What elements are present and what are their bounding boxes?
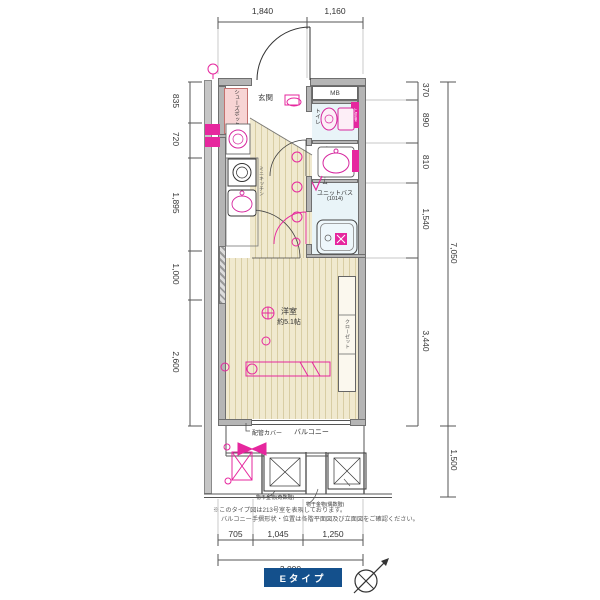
extension-lines bbox=[218, 29, 406, 534]
toilet-door-arc bbox=[270, 140, 306, 176]
bath-check-mark bbox=[312, 176, 322, 190]
washer-tag-1 bbox=[205, 124, 220, 135]
entrance-door-arc bbox=[257, 27, 310, 80]
entrance-step-line bbox=[250, 118, 312, 155]
kitchen-stove bbox=[228, 159, 256, 186]
bathtub bbox=[317, 220, 357, 254]
washer-tag-2 bbox=[205, 137, 220, 147]
evacuation-hatch-odd bbox=[264, 453, 306, 491]
wash-basin bbox=[318, 147, 354, 177]
pipe-cover-leader bbox=[246, 423, 250, 431]
ground-lines bbox=[204, 494, 392, 498]
toilet-fixture bbox=[321, 108, 354, 130]
compass-icon bbox=[354, 558, 389, 593]
basin-side-tag bbox=[352, 150, 359, 172]
room-window bbox=[252, 421, 350, 425]
washing-machine bbox=[226, 124, 250, 154]
floor-plan-page: MB シューズボックス クローゼット 玄関 トイレ パウダールーム 上部棚 ユニ… bbox=[0, 0, 600, 600]
kitchen-sink bbox=[228, 190, 256, 216]
room-door-arc bbox=[252, 210, 300, 258]
plan-graphics bbox=[0, 0, 600, 600]
evacuation-hatch-even bbox=[328, 453, 366, 489]
closet-door-lines bbox=[338, 315, 356, 354]
